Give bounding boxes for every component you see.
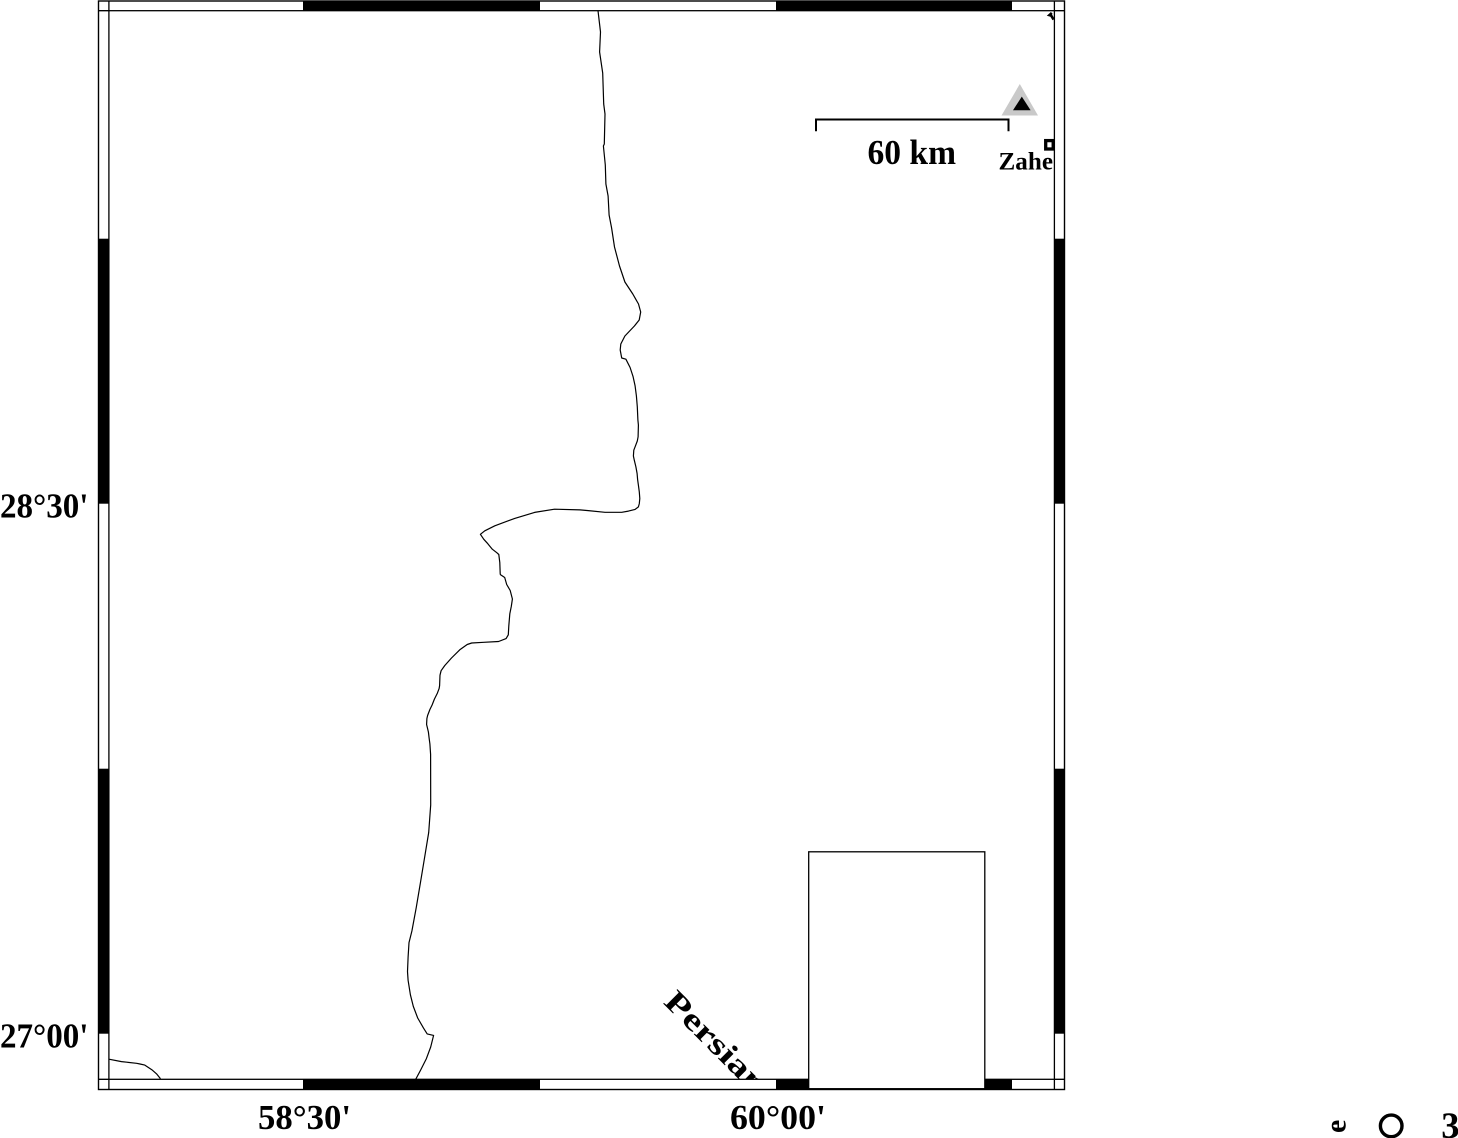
svg-text:28°30': 28°30' — [0, 486, 89, 525]
svg-text:60 km: 60 km — [868, 133, 957, 172]
svg-text:3: 3 — [1441, 1105, 1458, 1138]
svg-text:58°30': 58°30' — [258, 1098, 351, 1137]
svg-text:27°00': 27°00' — [0, 1017, 89, 1056]
svg-text:e: e — [1320, 1120, 1353, 1133]
svg-text:60°00': 60°00' — [730, 1098, 826, 1137]
